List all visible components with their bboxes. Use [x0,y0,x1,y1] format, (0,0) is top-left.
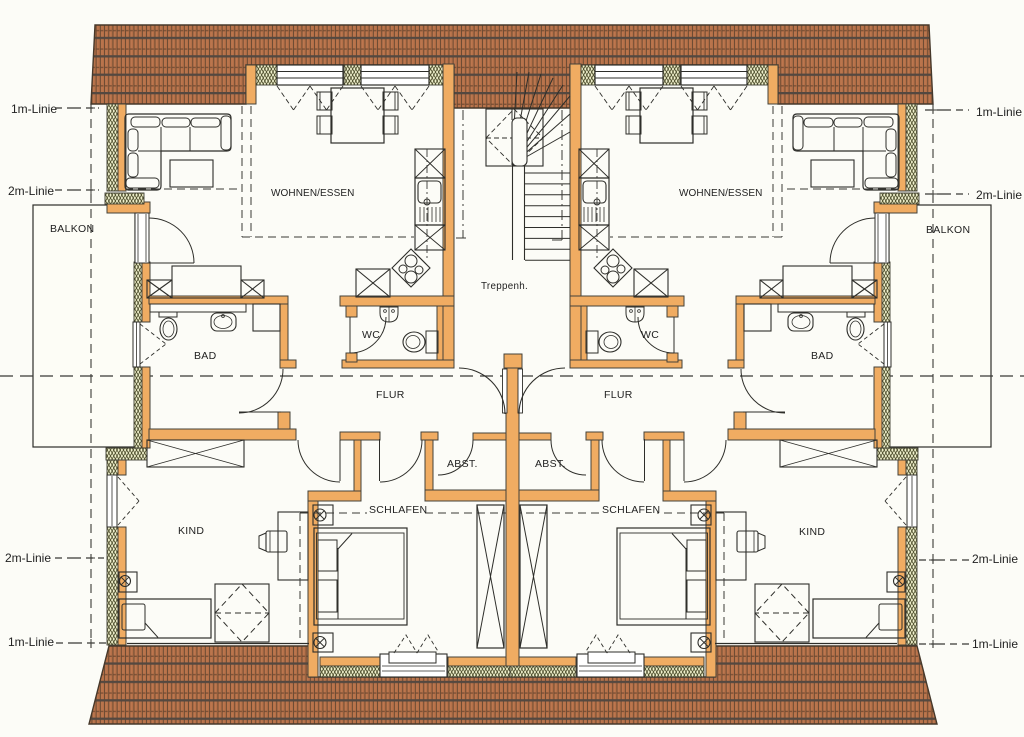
svg-text:1m-Linie: 1m-Linie [11,102,57,116]
svg-text:1m-Linie: 1m-Linie [8,635,54,649]
svg-text:2m-Linie: 2m-Linie [972,552,1018,566]
svg-text:1m-Linie: 1m-Linie [972,637,1018,651]
svg-text:BAD: BAD [811,350,834,362]
svg-text:Treppenh.: Treppenh. [481,281,528,292]
svg-text:2m-Linie: 2m-Linie [5,551,51,565]
svg-text:KIND: KIND [178,525,204,537]
svg-text:WOHNEN/ESSEN: WOHNEN/ESSEN [679,188,762,199]
svg-text:WC: WC [641,329,659,341]
svg-text:KIND: KIND [799,526,825,538]
svg-text:FLUR: FLUR [376,389,405,401]
svg-text:SCHLAFEN: SCHLAFEN [602,504,660,516]
svg-text:BALKON: BALKON [50,223,94,235]
svg-text:1m-Linie: 1m-Linie [976,105,1022,119]
svg-text:2m-Linie: 2m-Linie [976,188,1022,202]
svg-text:BALKON: BALKON [926,224,970,236]
svg-text:FLUR: FLUR [604,389,633,401]
svg-text:SCHLAFEN: SCHLAFEN [369,504,427,516]
svg-text:WOHNEN/ESSEN: WOHNEN/ESSEN [271,188,354,199]
svg-text:2m-Linie: 2m-Linie [8,184,54,198]
svg-text:WC: WC [362,329,380,341]
svg-text:ABST.: ABST. [447,458,478,470]
svg-text:BAD: BAD [194,350,217,362]
svg-text:ABST.: ABST. [535,458,566,470]
